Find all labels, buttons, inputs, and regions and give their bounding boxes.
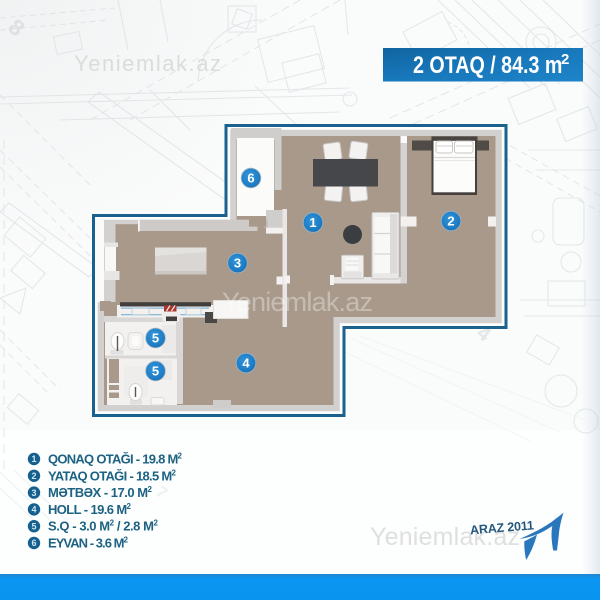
svg-text:4: 4 — [31, 505, 36, 515]
svg-text:YATAQ OTAĞI - 18.5 M2: YATAQ OTAĞI - 18.5 M2 — [48, 468, 177, 483]
svg-text:4: 4 — [242, 356, 250, 371]
svg-text:MƏTBƏX - 17.0 M2: MƏTBƏX - 17.0 M2 — [48, 485, 153, 500]
svg-text:6: 6 — [31, 538, 36, 548]
svg-text:6: 6 — [247, 171, 254, 186]
svg-text:3: 3 — [234, 256, 241, 271]
svg-text:5: 5 — [31, 521, 36, 531]
svg-text:QONAQ OTAĞI - 19.8 M2: QONAQ OTAĞI - 19.8 M2 — [48, 452, 183, 467]
svg-text:1: 1 — [31, 454, 36, 464]
svg-text:EYVAN - 3.6 M2: EYVAN - 3.6 M2 — [48, 536, 129, 551]
svg-text:HOLL - 19.6 M2: HOLL - 19.6 M2 — [48, 502, 132, 517]
svg-text:5: 5 — [152, 364, 159, 379]
svg-text:2: 2 — [447, 214, 454, 229]
svg-text:2 OTAQ / 84.3 m: 2 OTAQ / 84.3 m — [413, 51, 562, 78]
svg-text:3: 3 — [31, 488, 36, 498]
svg-text:Yeniemlak.az: Yeniemlak.az — [222, 287, 373, 317]
svg-text:Yeniemlak.az: Yeniemlak.az — [74, 51, 221, 76]
svg-text:S.Q - 3.0 M2 / 2.8 M2: S.Q - 3.0 M2 / 2.8 M2 — [48, 519, 159, 534]
svg-text:2: 2 — [561, 51, 569, 68]
svg-text:2: 2 — [31, 471, 36, 481]
svg-text:5: 5 — [152, 331, 159, 346]
svg-text:1: 1 — [309, 215, 316, 230]
